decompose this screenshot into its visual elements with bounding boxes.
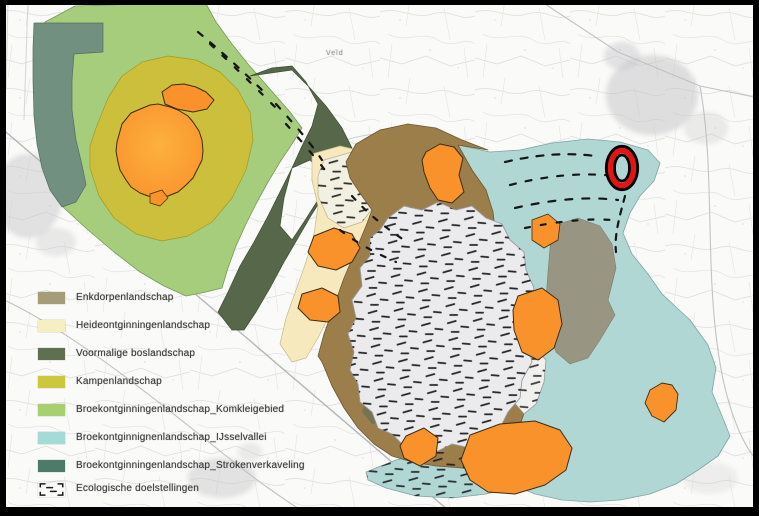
town-texture-bottom (188, 458, 256, 498)
map-canvas (0, 0, 759, 516)
town-texture-bottom-2 (238, 443, 262, 461)
place-label-veld: Veld (326, 50, 344, 57)
frame-border-left (0, 0, 6, 516)
frame-border-top (0, 0, 759, 5)
city-texture-left-2 (36, 228, 76, 256)
frame-border-right (753, 0, 759, 516)
map-frame: Veld Enkdorpenlandschap Heideontginninge… (0, 0, 759, 516)
frame-border-bottom (0, 507, 759, 516)
